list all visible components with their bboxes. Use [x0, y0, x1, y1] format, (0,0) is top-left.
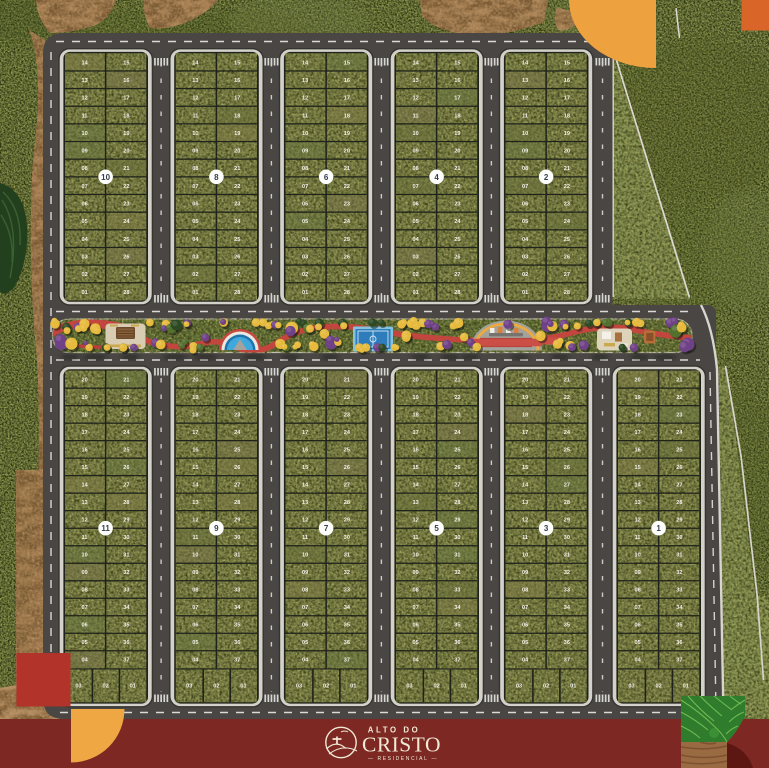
svg-text:08: 08 — [412, 166, 418, 172]
svg-text:22: 22 — [564, 184, 570, 190]
svg-text:13: 13 — [412, 78, 418, 84]
svg-text:06: 06 — [522, 202, 528, 208]
svg-text:13: 13 — [522, 78, 528, 84]
svg-text:04: 04 — [302, 237, 309, 243]
svg-text:12: 12 — [302, 96, 308, 102]
svg-text:06: 06 — [412, 202, 418, 208]
svg-text:09: 09 — [192, 570, 198, 576]
svg-text:23: 23 — [454, 202, 460, 208]
svg-text:26: 26 — [123, 255, 129, 261]
svg-text:06: 06 — [412, 623, 418, 629]
svg-text:CRISTO: CRISTO — [362, 733, 441, 757]
svg-text:27: 27 — [454, 483, 460, 489]
svg-text:09: 09 — [522, 149, 528, 155]
svg-text:15: 15 — [302, 465, 308, 471]
svg-text:10: 10 — [522, 553, 528, 559]
svg-text:11: 11 — [413, 535, 419, 541]
svg-text:11: 11 — [192, 535, 198, 541]
svg-text:32: 32 — [676, 570, 682, 576]
svg-text:05: 05 — [302, 219, 308, 225]
svg-text:20: 20 — [522, 378, 528, 384]
svg-text:18: 18 — [192, 413, 198, 419]
svg-text:18: 18 — [302, 413, 308, 419]
svg-text:21: 21 — [123, 166, 129, 172]
svg-text:23: 23 — [564, 202, 570, 208]
svg-text:25: 25 — [564, 237, 570, 243]
svg-text:25: 25 — [564, 448, 570, 454]
svg-text:34: 34 — [454, 605, 461, 611]
svg-text:21: 21 — [454, 378, 460, 384]
svg-text:29: 29 — [564, 518, 570, 524]
svg-text:30: 30 — [123, 535, 129, 541]
svg-text:02: 02 — [323, 684, 329, 690]
svg-text:15: 15 — [344, 60, 350, 66]
svg-text:08: 08 — [522, 166, 528, 172]
svg-text:16: 16 — [192, 448, 198, 454]
svg-text:21: 21 — [344, 166, 350, 172]
svg-text:25: 25 — [123, 237, 129, 243]
svg-text:33: 33 — [123, 588, 129, 594]
svg-text:16: 16 — [234, 78, 240, 84]
svg-text:31: 31 — [123, 553, 129, 559]
svg-text:12: 12 — [192, 96, 198, 102]
svg-text:23: 23 — [234, 413, 240, 419]
svg-text:24: 24 — [564, 430, 571, 436]
svg-text:03: 03 — [186, 684, 192, 690]
svg-text:20: 20 — [81, 378, 87, 384]
svg-text:06: 06 — [192, 623, 198, 629]
svg-text:10: 10 — [302, 553, 308, 559]
svg-text:36: 36 — [564, 640, 570, 646]
svg-text:32: 32 — [454, 570, 460, 576]
svg-text:31: 31 — [454, 553, 460, 559]
svg-text:37: 37 — [123, 658, 129, 664]
svg-text:09: 09 — [634, 570, 640, 576]
svg-text:26: 26 — [344, 255, 350, 261]
svg-text:11: 11 — [82, 535, 88, 541]
svg-text:21: 21 — [676, 378, 682, 384]
svg-text:28: 28 — [344, 500, 350, 506]
svg-text:22: 22 — [234, 184, 240, 190]
svg-text:14: 14 — [412, 60, 419, 66]
svg-text:22: 22 — [234, 395, 240, 401]
svg-text:19: 19 — [634, 395, 640, 401]
svg-text:19: 19 — [522, 395, 528, 401]
svg-text:14: 14 — [302, 483, 309, 489]
svg-text:19: 19 — [81, 395, 87, 401]
svg-text:17: 17 — [81, 430, 87, 436]
svg-text:14: 14 — [412, 483, 419, 489]
svg-text:21: 21 — [454, 166, 460, 172]
svg-text:20: 20 — [344, 149, 350, 155]
svg-text:23: 23 — [454, 413, 460, 419]
svg-text:28: 28 — [564, 290, 570, 296]
svg-text:08: 08 — [412, 588, 418, 594]
svg-text:24: 24 — [123, 219, 130, 225]
svg-text:01: 01 — [570, 684, 576, 690]
svg-text:03: 03 — [75, 684, 81, 690]
svg-text:22: 22 — [344, 395, 350, 401]
svg-text:32: 32 — [564, 570, 570, 576]
svg-text:15: 15 — [412, 465, 418, 471]
svg-text:11: 11 — [82, 113, 88, 119]
svg-text:36: 36 — [234, 640, 240, 646]
svg-text:01: 01 — [461, 684, 467, 690]
svg-text:25: 25 — [454, 237, 460, 243]
svg-text:19: 19 — [412, 395, 418, 401]
svg-text:34: 34 — [344, 605, 351, 611]
svg-text:14: 14 — [192, 483, 199, 489]
svg-text:24: 24 — [344, 430, 351, 436]
svg-text:19: 19 — [344, 131, 350, 137]
svg-text:03: 03 — [81, 255, 87, 261]
svg-text:12: 12 — [412, 518, 418, 524]
svg-text:22: 22 — [454, 184, 460, 190]
svg-text:— RESIDENCIAL —: — RESIDENCIAL — — [368, 756, 438, 762]
svg-text:01: 01 — [350, 684, 356, 690]
svg-text:31: 31 — [676, 553, 682, 559]
svg-text:22: 22 — [564, 395, 570, 401]
svg-text:10: 10 — [412, 131, 418, 137]
svg-text:30: 30 — [564, 535, 570, 541]
svg-text:16: 16 — [522, 448, 528, 454]
svg-text:01: 01 — [683, 684, 689, 690]
svg-text:13: 13 — [302, 78, 308, 84]
svg-text:14: 14 — [81, 483, 88, 489]
svg-text:07: 07 — [412, 605, 418, 611]
svg-text:18: 18 — [564, 113, 570, 119]
svg-text:22: 22 — [676, 395, 682, 401]
svg-text:06: 06 — [634, 623, 640, 629]
svg-text:23: 23 — [676, 413, 682, 419]
svg-text:26: 26 — [454, 255, 460, 261]
svg-text:07: 07 — [81, 184, 87, 190]
svg-text:12: 12 — [81, 518, 87, 524]
svg-text:04: 04 — [302, 658, 309, 664]
svg-text:37: 37 — [676, 658, 682, 664]
svg-text:16: 16 — [454, 78, 460, 84]
svg-text:27: 27 — [344, 272, 350, 278]
svg-text:23: 23 — [564, 413, 570, 419]
svg-text:35: 35 — [564, 623, 570, 629]
svg-text:12: 12 — [634, 518, 640, 524]
svg-text:11: 11 — [302, 535, 308, 541]
svg-text:17: 17 — [634, 430, 640, 436]
svg-text:17: 17 — [412, 430, 418, 436]
svg-text:21: 21 — [564, 166, 570, 172]
svg-text:16: 16 — [564, 78, 570, 84]
svg-text:26: 26 — [344, 465, 350, 471]
svg-text:06: 06 — [192, 202, 198, 208]
svg-text:26: 26 — [564, 465, 570, 471]
svg-text:08: 08 — [192, 588, 198, 594]
svg-text:5: 5 — [434, 524, 439, 533]
svg-text:20: 20 — [564, 149, 570, 155]
svg-text:29: 29 — [123, 518, 129, 524]
svg-text:10: 10 — [192, 131, 198, 137]
svg-text:21: 21 — [234, 166, 240, 172]
svg-text:08: 08 — [302, 166, 308, 172]
svg-text:26: 26 — [676, 465, 682, 471]
svg-text:20: 20 — [192, 378, 198, 384]
svg-text:10: 10 — [522, 131, 528, 137]
svg-text:04: 04 — [192, 658, 199, 664]
svg-text:18: 18 — [81, 413, 87, 419]
svg-text:37: 37 — [564, 658, 570, 664]
svg-text:13: 13 — [81, 78, 87, 84]
svg-text:02: 02 — [302, 272, 308, 278]
svg-text:04: 04 — [412, 658, 419, 664]
svg-text:14: 14 — [522, 483, 529, 489]
svg-text:19: 19 — [192, 395, 198, 401]
svg-text:22: 22 — [454, 395, 460, 401]
svg-text:24: 24 — [234, 219, 241, 225]
svg-text:1: 1 — [656, 524, 661, 533]
svg-text:23: 23 — [344, 413, 350, 419]
svg-text:15: 15 — [454, 60, 460, 66]
svg-text:17: 17 — [454, 96, 460, 102]
svg-text:28: 28 — [676, 500, 682, 506]
svg-text:07: 07 — [302, 184, 308, 190]
svg-text:09: 09 — [81, 149, 87, 155]
svg-text:32: 32 — [123, 570, 129, 576]
svg-text:04: 04 — [522, 237, 529, 243]
svg-text:35: 35 — [676, 623, 682, 629]
svg-text:15: 15 — [564, 60, 570, 66]
svg-text:05: 05 — [522, 640, 528, 646]
svg-text:21: 21 — [123, 378, 129, 384]
svg-text:18: 18 — [344, 113, 350, 119]
svg-text:09: 09 — [522, 570, 528, 576]
svg-text:23: 23 — [123, 413, 129, 419]
svg-text:17: 17 — [192, 430, 198, 436]
svg-text:33: 33 — [454, 588, 460, 594]
svg-text:01: 01 — [412, 290, 418, 296]
svg-text:03: 03 — [406, 684, 412, 690]
svg-text:11: 11 — [101, 524, 110, 533]
svg-text:36: 36 — [344, 640, 350, 646]
svg-text:01: 01 — [130, 684, 136, 690]
svg-text:07: 07 — [192, 605, 198, 611]
svg-text:24: 24 — [454, 430, 461, 436]
svg-text:16: 16 — [81, 448, 87, 454]
svg-text:35: 35 — [234, 623, 240, 629]
svg-text:27: 27 — [564, 483, 570, 489]
svg-text:15: 15 — [192, 465, 198, 471]
svg-text:13: 13 — [192, 78, 198, 84]
svg-text:12: 12 — [192, 518, 198, 524]
svg-text:19: 19 — [454, 131, 460, 137]
svg-text:26: 26 — [234, 465, 240, 471]
svg-text:12: 12 — [302, 518, 308, 524]
svg-text:07: 07 — [522, 184, 528, 190]
svg-text:19: 19 — [123, 131, 129, 137]
svg-text:32: 32 — [234, 570, 240, 576]
svg-text:33: 33 — [344, 588, 350, 594]
svg-text:15: 15 — [522, 465, 528, 471]
svg-text:28: 28 — [344, 290, 350, 296]
svg-text:18: 18 — [634, 413, 640, 419]
svg-text:15: 15 — [81, 465, 87, 471]
svg-text:02: 02 — [433, 684, 439, 690]
svg-text:12: 12 — [522, 96, 528, 102]
svg-text:09: 09 — [81, 570, 87, 576]
svg-text:28: 28 — [454, 500, 460, 506]
svg-text:33: 33 — [564, 588, 570, 594]
svg-text:26: 26 — [123, 465, 129, 471]
svg-text:14: 14 — [522, 60, 529, 66]
svg-text:4: 4 — [434, 173, 439, 182]
svg-text:07: 07 — [192, 184, 198, 190]
svg-text:15: 15 — [123, 60, 129, 66]
svg-text:12: 12 — [522, 518, 528, 524]
svg-text:03: 03 — [296, 684, 302, 690]
svg-text:10: 10 — [81, 553, 87, 559]
svg-text:09: 09 — [412, 570, 418, 576]
svg-text:33: 33 — [676, 588, 682, 594]
svg-text:22: 22 — [344, 184, 350, 190]
svg-text:20: 20 — [412, 378, 418, 384]
svg-text:13: 13 — [412, 500, 418, 506]
svg-text:23: 23 — [344, 202, 350, 208]
svg-text:6: 6 — [324, 173, 329, 182]
svg-text:21: 21 — [564, 378, 570, 384]
svg-text:08: 08 — [81, 588, 87, 594]
svg-text:14: 14 — [302, 60, 309, 66]
svg-text:15: 15 — [634, 465, 640, 471]
svg-text:18: 18 — [454, 113, 460, 119]
svg-text:11: 11 — [413, 113, 419, 119]
svg-text:02: 02 — [522, 272, 528, 278]
svg-text:19: 19 — [302, 395, 308, 401]
svg-text:28: 28 — [234, 500, 240, 506]
svg-text:01: 01 — [192, 290, 198, 296]
svg-text:12: 12 — [81, 96, 87, 102]
svg-text:08: 08 — [522, 588, 528, 594]
svg-text:29: 29 — [234, 518, 240, 524]
svg-text:04: 04 — [522, 658, 529, 664]
svg-text:05: 05 — [634, 640, 640, 646]
svg-text:10: 10 — [81, 131, 87, 137]
svg-text:13: 13 — [522, 500, 528, 506]
svg-text:31: 31 — [344, 553, 350, 559]
svg-text:24: 24 — [234, 430, 241, 436]
svg-text:36: 36 — [454, 640, 460, 646]
svg-text:27: 27 — [234, 272, 240, 278]
svg-text:08: 08 — [81, 166, 87, 172]
svg-text:16: 16 — [344, 78, 350, 84]
svg-text:11: 11 — [522, 535, 528, 541]
svg-text:13: 13 — [634, 500, 640, 506]
svg-text:24: 24 — [676, 430, 683, 436]
svg-text:14: 14 — [634, 483, 641, 489]
svg-text:02: 02 — [102, 684, 108, 690]
svg-text:09: 09 — [302, 570, 308, 576]
svg-text:14: 14 — [192, 60, 199, 66]
svg-text:25: 25 — [344, 237, 350, 243]
svg-text:06: 06 — [81, 623, 87, 629]
svg-text:11: 11 — [192, 113, 198, 119]
svg-text:07: 07 — [522, 605, 528, 611]
svg-text:05: 05 — [412, 219, 418, 225]
svg-text:33: 33 — [234, 588, 240, 594]
svg-text:10: 10 — [101, 173, 110, 182]
svg-text:18: 18 — [412, 413, 418, 419]
svg-text:18: 18 — [123, 113, 129, 119]
svg-text:11: 11 — [522, 113, 528, 119]
svg-text:13: 13 — [81, 500, 87, 506]
svg-text:01: 01 — [81, 290, 87, 296]
svg-text:23: 23 — [123, 202, 129, 208]
svg-text:20: 20 — [123, 149, 129, 155]
svg-text:34: 34 — [234, 605, 241, 611]
svg-text:31: 31 — [564, 553, 570, 559]
svg-text:05: 05 — [412, 640, 418, 646]
svg-text:07: 07 — [302, 605, 308, 611]
svg-text:02: 02 — [192, 272, 198, 278]
svg-text:15: 15 — [234, 60, 240, 66]
svg-text:03: 03 — [302, 255, 308, 261]
svg-text:27: 27 — [454, 272, 460, 278]
svg-text:25: 25 — [454, 448, 460, 454]
svg-text:26: 26 — [234, 255, 240, 261]
svg-text:06: 06 — [302, 623, 308, 629]
svg-text:17: 17 — [564, 96, 570, 102]
svg-text:29: 29 — [454, 518, 460, 524]
svg-text:10: 10 — [634, 553, 640, 559]
svg-text:8: 8 — [214, 173, 219, 182]
svg-text:9: 9 — [214, 524, 219, 533]
svg-text:17: 17 — [522, 430, 528, 436]
svg-text:24: 24 — [564, 219, 571, 225]
svg-text:27: 27 — [564, 272, 570, 278]
svg-text:17: 17 — [234, 96, 240, 102]
svg-text:06: 06 — [302, 202, 308, 208]
svg-text:10: 10 — [192, 553, 198, 559]
svg-text:16: 16 — [302, 448, 308, 454]
svg-text:01: 01 — [302, 290, 308, 296]
svg-text:28: 28 — [123, 290, 129, 296]
svg-text:28: 28 — [454, 290, 460, 296]
svg-text:03: 03 — [522, 255, 528, 261]
svg-text:36: 36 — [123, 640, 129, 646]
svg-text:05: 05 — [192, 640, 198, 646]
svg-text:05: 05 — [81, 640, 87, 646]
svg-text:18: 18 — [522, 413, 528, 419]
svg-text:30: 30 — [234, 535, 240, 541]
svg-text:04: 04 — [634, 658, 641, 664]
svg-text:16: 16 — [634, 448, 640, 454]
svg-text:07: 07 — [81, 605, 87, 611]
svg-text:05: 05 — [302, 640, 308, 646]
svg-text:07: 07 — [634, 605, 640, 611]
svg-text:12: 12 — [412, 96, 418, 102]
svg-text:30: 30 — [454, 535, 460, 541]
svg-text:27: 27 — [123, 483, 129, 489]
svg-text:05: 05 — [81, 219, 87, 225]
svg-text:05: 05 — [192, 219, 198, 225]
svg-text:10: 10 — [302, 131, 308, 137]
svg-text:29: 29 — [344, 518, 350, 524]
svg-text:20: 20 — [634, 378, 640, 384]
svg-text:17: 17 — [123, 96, 129, 102]
svg-text:17: 17 — [344, 96, 350, 102]
svg-text:13: 13 — [302, 500, 308, 506]
svg-text:35: 35 — [454, 623, 460, 629]
svg-text:04: 04 — [412, 237, 419, 243]
svg-text:09: 09 — [192, 149, 198, 155]
svg-text:16: 16 — [412, 448, 418, 454]
